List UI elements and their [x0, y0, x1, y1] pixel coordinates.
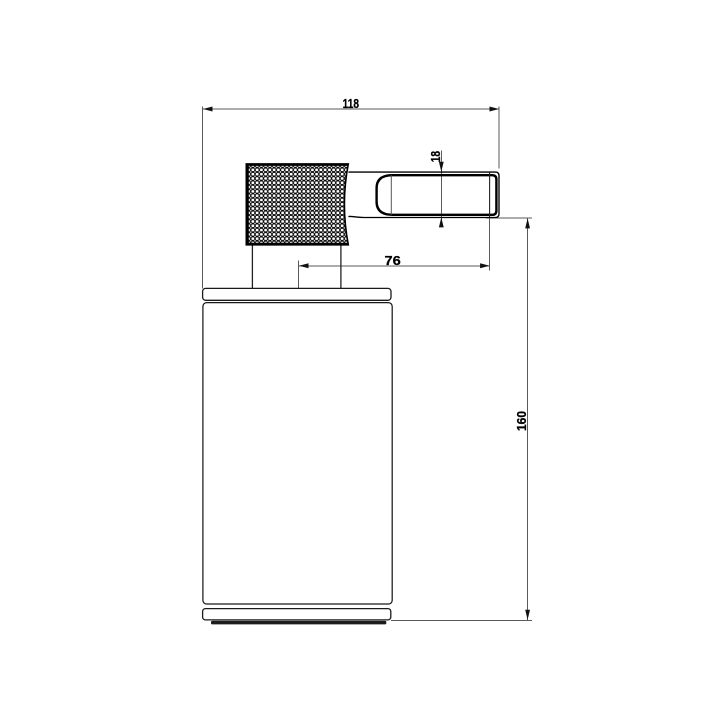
- svg-text:118: 118: [343, 96, 359, 111]
- svg-text:18: 18: [428, 151, 443, 162]
- svg-text:160: 160: [514, 411, 529, 431]
- svg-text:76: 76: [385, 253, 401, 268]
